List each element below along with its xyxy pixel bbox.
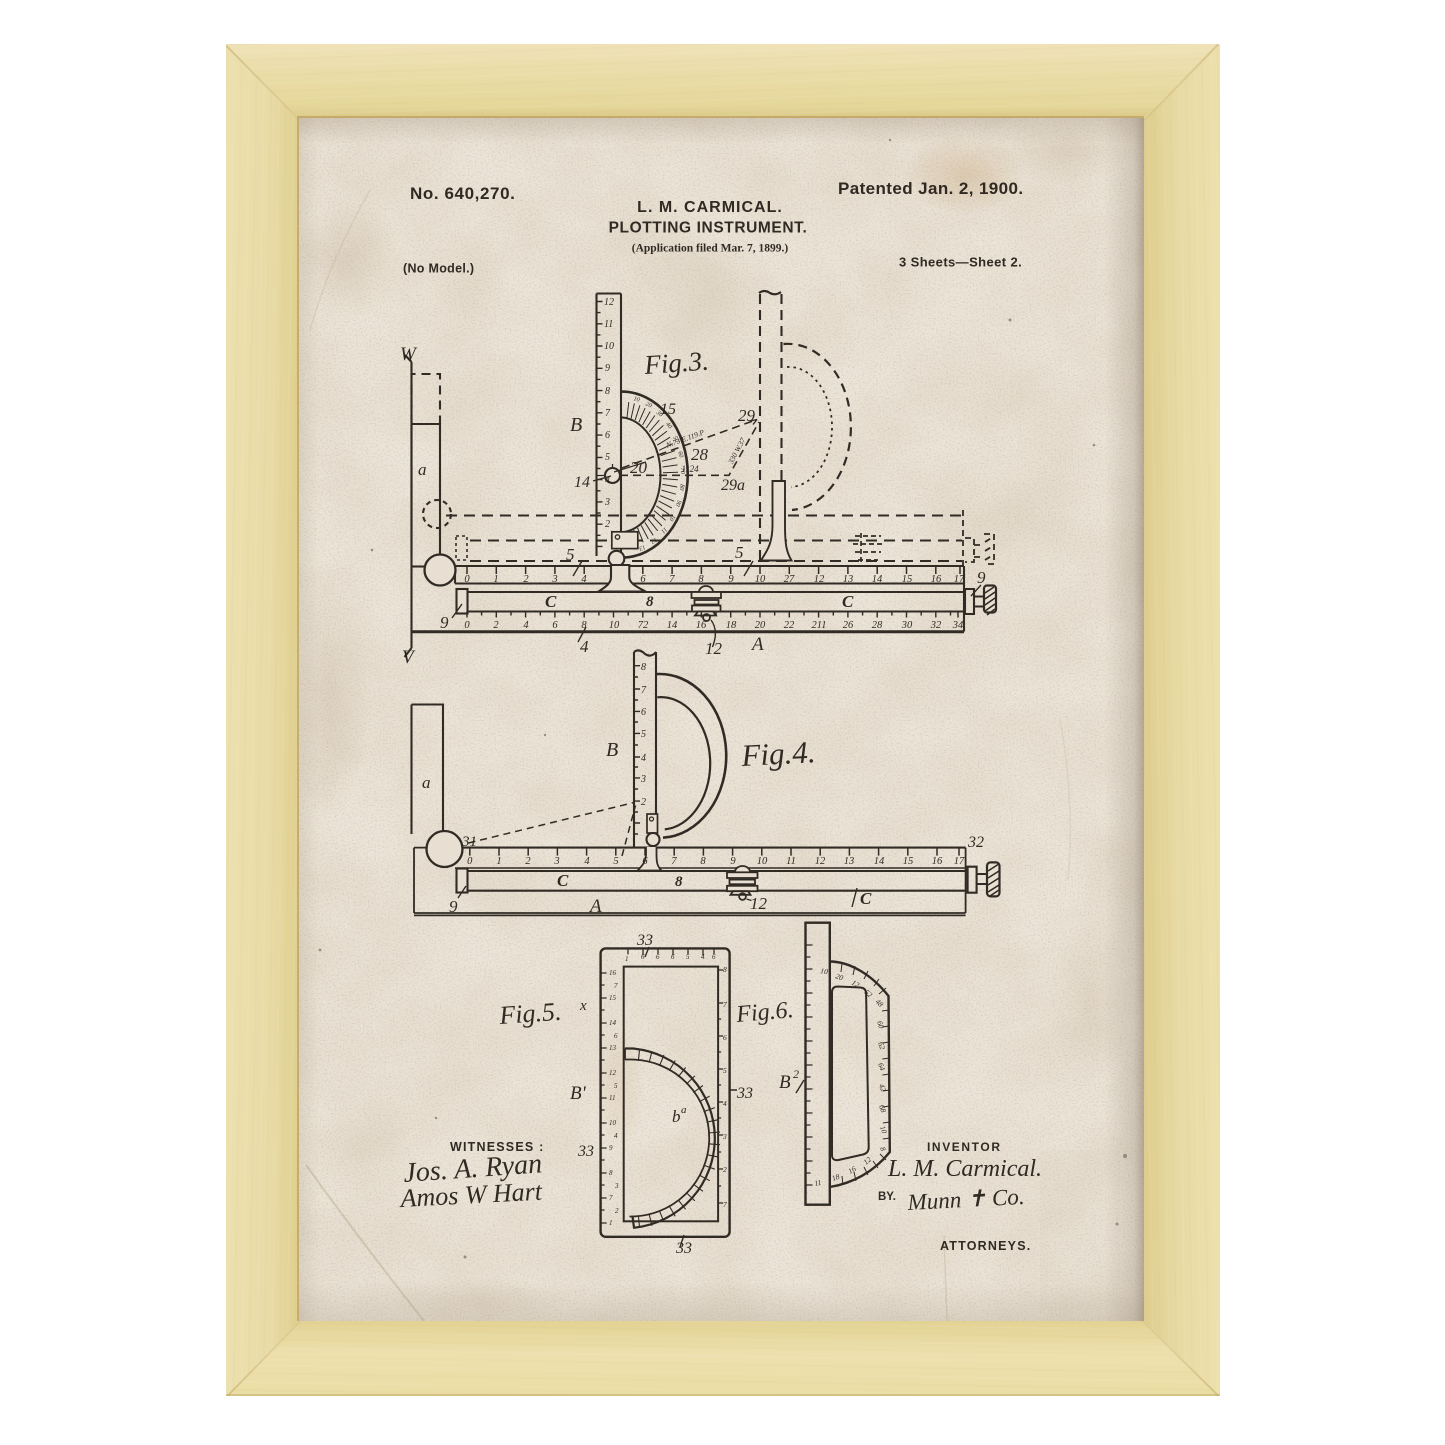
- svg-text:4: 4: [701, 953, 705, 961]
- svg-text:12: 12: [815, 856, 826, 867]
- svg-text:(Application filed Mar. 7, 189: (Application filed Mar. 7, 1899.): [632, 243, 789, 255]
- svg-text:5: 5: [723, 1066, 727, 1075]
- svg-text:C: C: [860, 889, 872, 908]
- svg-text:211: 211: [812, 620, 827, 631]
- svg-text:b: b: [672, 1107, 681, 1126]
- svg-text:x: x: [579, 998, 587, 1014]
- svg-text:5: 5: [566, 545, 575, 564]
- svg-text:16: 16: [696, 620, 707, 631]
- svg-text:9: 9: [977, 568, 986, 587]
- svg-text:17: 17: [954, 574, 965, 585]
- svg-text:BY.: BY.: [878, 1191, 896, 1203]
- svg-text:16: 16: [931, 574, 942, 585]
- svg-text:A: A: [750, 634, 764, 655]
- svg-text:12: 12: [814, 574, 825, 585]
- svg-text:INVENTOR: INVENTOR: [927, 1140, 1002, 1154]
- svg-text:8: 8: [646, 594, 654, 610]
- svg-text:8: 8: [605, 386, 610, 397]
- svg-text:14: 14: [874, 856, 885, 867]
- svg-text:9: 9: [449, 897, 458, 916]
- svg-text:0: 0: [464, 574, 470, 585]
- svg-text:5: 5: [605, 452, 610, 463]
- svg-text:8: 8: [723, 965, 727, 974]
- svg-text:12: 12: [705, 639, 723, 658]
- svg-text:10: 10: [604, 341, 614, 352]
- svg-text:17: 17: [954, 856, 965, 867]
- svg-text:4: 4: [584, 856, 590, 867]
- svg-text:6: 6: [723, 1033, 727, 1042]
- svg-text:13: 13: [843, 574, 854, 585]
- svg-text:6: 6: [642, 856, 648, 867]
- svg-text:7: 7: [609, 1194, 613, 1202]
- svg-text:3: 3: [640, 774, 646, 785]
- svg-text:3: 3: [614, 1182, 619, 1190]
- svg-text:14: 14: [574, 474, 590, 491]
- svg-text:16: 16: [609, 969, 617, 977]
- svg-text:9: 9: [728, 574, 734, 585]
- svg-text:11: 11: [604, 319, 613, 330]
- svg-text:3: 3: [551, 574, 557, 585]
- svg-text:20: 20: [755, 620, 766, 631]
- svg-text:8: 8: [609, 1169, 613, 1177]
- svg-text:9: 9: [730, 856, 736, 867]
- svg-text:8: 8: [581, 620, 587, 631]
- svg-text:33: 33: [675, 1240, 692, 1257]
- svg-text:6: 6: [552, 620, 558, 631]
- svg-text:29a: 29a: [721, 477, 745, 494]
- svg-text:10: 10: [755, 574, 766, 585]
- svg-text:2: 2: [525, 856, 531, 867]
- svg-text:6: 6: [640, 574, 646, 585]
- svg-text:13: 13: [844, 856, 855, 867]
- svg-text:A: A: [588, 896, 602, 917]
- svg-text:26: 26: [843, 620, 854, 631]
- svg-text:5: 5: [686, 953, 690, 961]
- svg-text:33: 33: [577, 1143, 594, 1160]
- svg-text:Patented Jan. 2, 1900.: Patented Jan. 2, 1900.: [838, 179, 1024, 198]
- svg-text:(No Model.): (No Model.): [403, 262, 474, 276]
- svg-text:5: 5: [614, 1082, 618, 1090]
- svg-text:1: 1: [609, 1219, 613, 1227]
- svg-text:1: 1: [496, 856, 501, 867]
- svg-text:31: 31: [461, 834, 477, 850]
- svg-text:B: B: [606, 739, 618, 761]
- svg-text:11: 11: [609, 1094, 615, 1102]
- svg-text:C: C: [545, 592, 557, 611]
- svg-text:12: 12: [604, 297, 614, 308]
- svg-text:33: 33: [736, 1085, 753, 1102]
- svg-text:18: 18: [726, 620, 737, 631]
- svg-text:3: 3: [604, 497, 610, 508]
- svg-text:29: 29: [738, 406, 756, 425]
- svg-text:7: 7: [723, 1000, 727, 1009]
- svg-text:L. M. Carmical.: L. M. Carmical.: [887, 1156, 1042, 1182]
- svg-text:4: 4: [581, 574, 587, 585]
- svg-text:L. M. CARMICAL.: L. M. CARMICAL.: [637, 199, 783, 216]
- svg-text:12: 12: [750, 894, 768, 913]
- svg-text:ATTORNEYS.: ATTORNEYS.: [940, 1239, 1031, 1253]
- svg-text:B: B: [570, 414, 582, 436]
- svg-text:4: 4: [580, 637, 589, 656]
- svg-text:6: 6: [605, 430, 610, 441]
- svg-text:7: 7: [671, 856, 677, 867]
- svg-text:4: 4: [614, 1132, 618, 1140]
- svg-text:72: 72: [638, 620, 649, 631]
- svg-text:22: 22: [784, 620, 795, 631]
- svg-text:6: 6: [712, 953, 716, 961]
- svg-text:2: 2: [615, 1207, 619, 1215]
- svg-text:3: 3: [553, 856, 559, 867]
- svg-text:Fig.3.: Fig.3.: [642, 346, 709, 380]
- svg-text:6: 6: [671, 953, 675, 961]
- svg-text:9: 9: [605, 363, 610, 374]
- svg-text:20: 20: [630, 458, 648, 477]
- svg-text:12: 12: [609, 1069, 617, 1077]
- svg-text:5: 5: [735, 543, 744, 562]
- svg-text:2: 2: [641, 797, 646, 808]
- svg-text:14: 14: [872, 574, 883, 585]
- svg-text:PLOTTING INSTRUMENT.: PLOTTING INSTRUMENT.: [609, 220, 808, 237]
- svg-text:0: 0: [467, 856, 473, 867]
- svg-text:Fig.4.: Fig.4.: [740, 734, 817, 773]
- svg-text:B: B: [779, 1072, 791, 1093]
- svg-text:6: 6: [641, 953, 645, 961]
- svg-text:3: 3: [722, 1132, 727, 1141]
- svg-text:2: 2: [793, 1067, 799, 1081]
- svg-text:4: 4: [723, 1099, 727, 1108]
- svg-text:a: a: [681, 1104, 687, 1116]
- svg-text:8: 8: [698, 574, 704, 585]
- svg-text:W: W: [400, 344, 418, 365]
- svg-text:5: 5: [613, 856, 618, 867]
- svg-text:16: 16: [932, 856, 943, 867]
- svg-text:8: 8: [641, 662, 646, 673]
- svg-text:4: 4: [641, 753, 646, 764]
- svg-text:a: a: [418, 460, 427, 479]
- svg-text:7: 7: [669, 574, 675, 585]
- svg-text:6: 6: [656, 953, 660, 961]
- svg-text:C: C: [557, 871, 569, 890]
- svg-text:14: 14: [609, 1019, 617, 1027]
- svg-text:3 Sheets—Sheet 2.: 3 Sheets—Sheet 2.: [899, 255, 1022, 270]
- svg-text:32: 32: [967, 834, 984, 851]
- svg-text:6: 6: [614, 1032, 618, 1040]
- svg-text:11: 11: [786, 856, 796, 867]
- svg-text:32: 32: [930, 620, 942, 631]
- svg-text:9: 9: [440, 613, 449, 632]
- svg-text:15: 15: [903, 856, 914, 867]
- svg-text:7: 7: [723, 1200, 727, 1209]
- svg-text:4: 4: [523, 620, 529, 631]
- svg-text:30: 30: [901, 620, 913, 631]
- svg-text:14: 14: [667, 620, 678, 631]
- svg-text:15: 15: [902, 574, 913, 585]
- svg-text:15: 15: [660, 401, 676, 418]
- svg-text:Fig.5.: Fig.5.: [497, 997, 562, 1030]
- svg-text:2: 2: [523, 574, 529, 585]
- svg-text:a: a: [422, 773, 431, 792]
- svg-text:13: 13: [609, 1044, 617, 1052]
- svg-text:10: 10: [757, 856, 768, 867]
- svg-text:8: 8: [675, 874, 683, 890]
- svg-text:2: 2: [605, 519, 610, 530]
- svg-text:9: 9: [609, 1144, 613, 1152]
- svg-text:28: 28: [872, 620, 883, 631]
- svg-text:6: 6: [641, 707, 646, 718]
- svg-text:1: 1: [625, 955, 629, 963]
- svg-text:0: 0: [464, 620, 470, 631]
- svg-text:27: 27: [784, 574, 795, 585]
- svg-text:4: 4: [605, 475, 610, 486]
- svg-text:Fig.6.: Fig.6.: [734, 997, 794, 1028]
- svg-text:2: 2: [493, 620, 499, 631]
- svg-text:28: 28: [691, 445, 709, 464]
- svg-text:34: 34: [952, 620, 964, 631]
- svg-text:33: 33: [636, 932, 653, 949]
- svg-text:1: 1: [493, 574, 498, 585]
- svg-text:5: 5: [641, 729, 646, 740]
- svg-text:7: 7: [614, 982, 618, 990]
- svg-text:No. 640,270.: No. 640,270.: [410, 184, 515, 203]
- svg-text:10: 10: [609, 1119, 617, 1127]
- svg-text:B': B': [570, 1083, 587, 1104]
- svg-text:10: 10: [609, 620, 620, 631]
- svg-text:C: C: [842, 592, 854, 611]
- svg-text:8: 8: [700, 856, 706, 867]
- svg-text:2: 2: [723, 1165, 727, 1174]
- svg-text:15: 15: [609, 994, 617, 1002]
